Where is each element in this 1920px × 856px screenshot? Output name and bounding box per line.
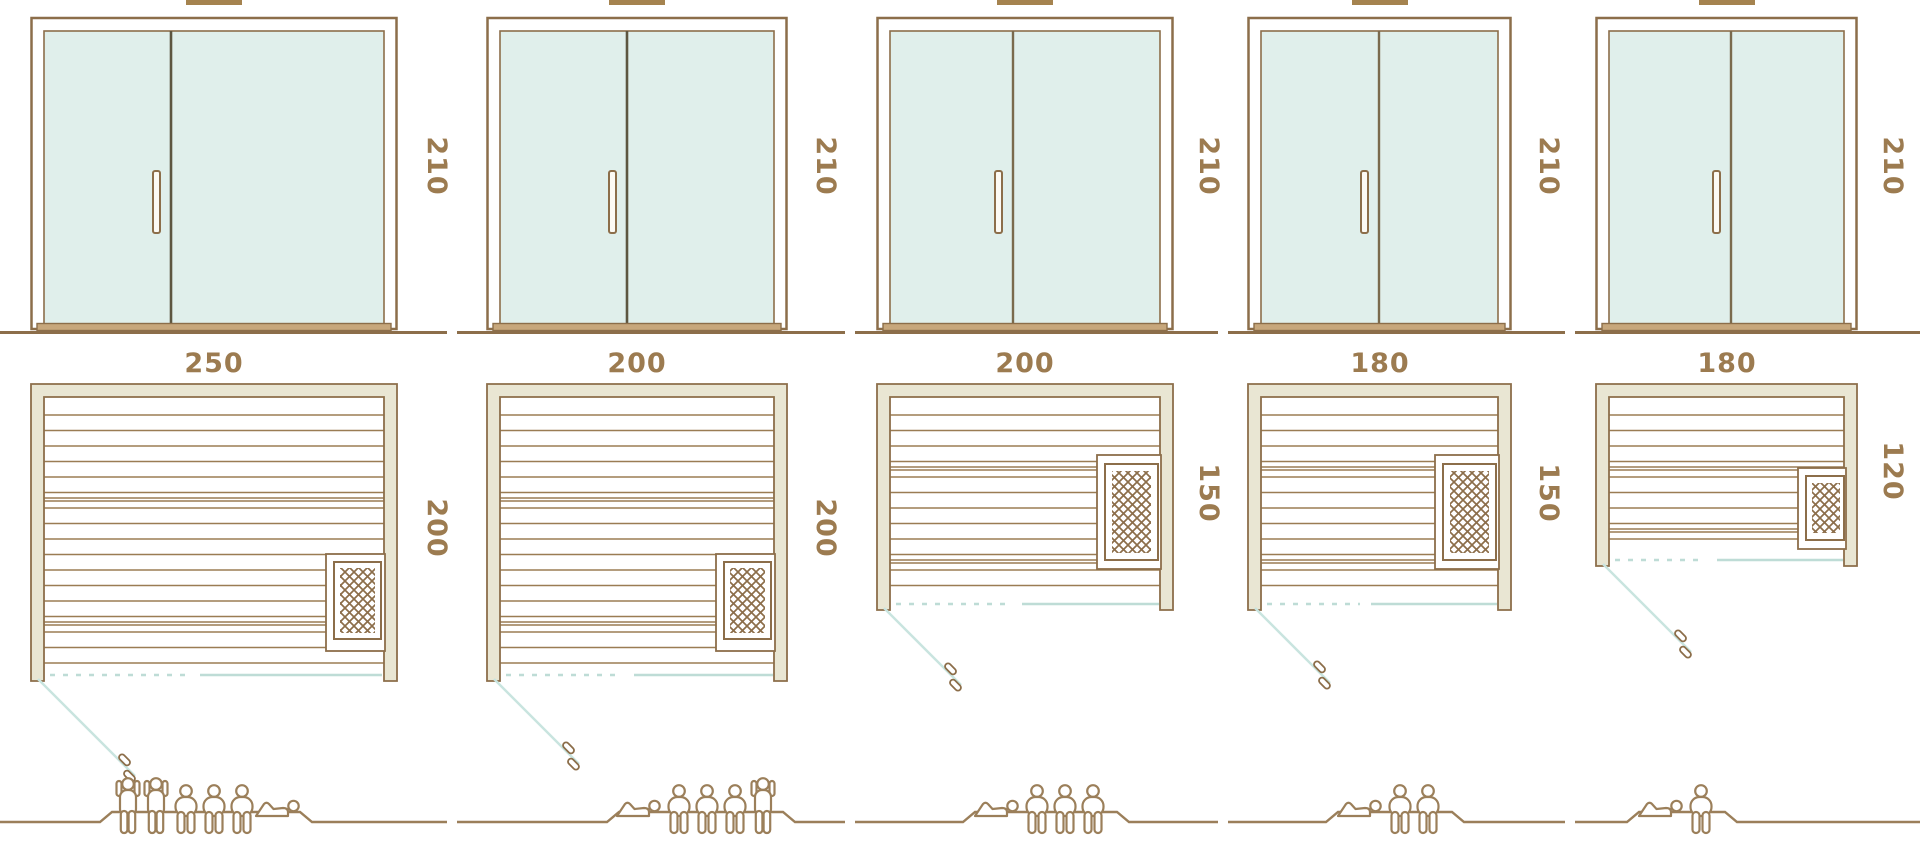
capacity-figures	[457, 775, 845, 850]
depth-dimension-label: 150	[1194, 463, 1222, 523]
heater-grille	[1112, 471, 1151, 553]
door-threshold	[1254, 324, 1505, 331]
door-threshold	[37, 324, 391, 331]
depth-dimension-label: 200	[422, 498, 450, 558]
height-dimension-label: 210	[1194, 136, 1222, 196]
door-handle	[1361, 171, 1368, 233]
door-swing-line	[1255, 608, 1330, 683]
width-dimension-label: 180	[1652, 350, 1802, 378]
capacity-figures	[1575, 775, 1920, 850]
sauna-front-elevation	[876, 16, 1174, 334]
capacity-figures	[1228, 775, 1565, 850]
sauna-front-elevation	[486, 16, 788, 334]
sauna-floor-plan	[1595, 383, 1858, 673]
door-swing-line	[494, 679, 579, 764]
sauna-floor-plan	[30, 383, 398, 788]
capacity-figures	[0, 775, 447, 850]
top-crop-bar	[609, 0, 665, 5]
heater-grille	[340, 568, 375, 633]
top-crop-bar	[997, 0, 1053, 5]
door-threshold	[883, 324, 1167, 331]
sauna-front-elevation	[1595, 16, 1858, 334]
depth-dimension-label: 150	[1534, 463, 1562, 523]
door-swing-line	[1603, 564, 1691, 652]
door-swing-line	[38, 679, 135, 776]
heater-grille	[730, 568, 765, 633]
top-crop-bar	[1699, 0, 1755, 5]
height-dimension-label: 210	[1534, 136, 1562, 196]
door-threshold	[493, 324, 781, 331]
door-handle	[1713, 171, 1720, 233]
sauna-floor-plan	[1247, 383, 1512, 717]
sauna-front-elevation	[1247, 16, 1512, 334]
door-handle	[995, 171, 1002, 233]
top-crop-bar	[1352, 0, 1408, 5]
width-dimension-label: 250	[139, 350, 289, 378]
width-dimension-label: 180	[1305, 350, 1455, 378]
depth-dimension-label: 200	[811, 498, 839, 558]
door-handle	[153, 171, 160, 233]
sauna-front-elevation	[30, 16, 398, 334]
heater-grille	[1450, 471, 1489, 553]
height-dimension-label: 210	[422, 136, 450, 196]
sauna-floor-plan	[486, 383, 788, 788]
sauna-size-diagram: 250 210 200	[0, 0, 1920, 856]
top-crop-bar	[186, 0, 242, 5]
door-swing-line	[884, 608, 961, 685]
height-dimension-label: 210	[811, 136, 839, 196]
heater-grille	[1812, 483, 1840, 533]
depth-dimension-label: 120	[1878, 441, 1906, 501]
sauna-floor-plan	[876, 383, 1174, 717]
capacity-figures	[855, 775, 1218, 850]
width-dimension-label: 200	[950, 350, 1100, 378]
door-handle	[609, 171, 616, 233]
width-dimension-label: 200	[562, 350, 712, 378]
door-threshold	[1602, 324, 1851, 331]
height-dimension-label: 210	[1878, 136, 1906, 196]
